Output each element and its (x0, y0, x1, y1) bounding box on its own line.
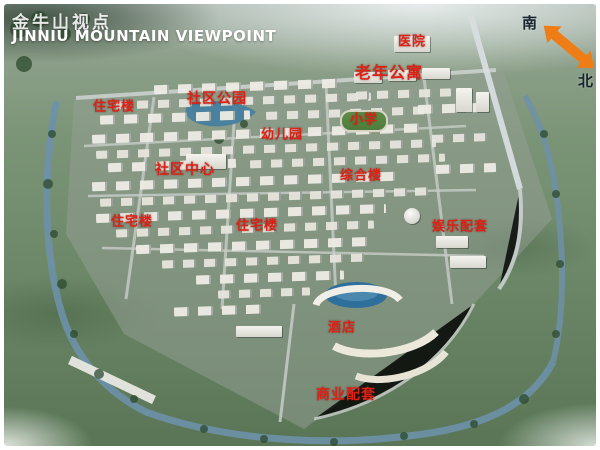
school-sports-field (340, 110, 388, 132)
office-tower (456, 88, 472, 112)
entertainment-building (436, 236, 468, 248)
aerial-rendering: 医院老年公寓社区公园住宅楼小学幼儿园社区中心综合楼住宅楼住宅楼娱乐配套酒店商业配… (4, 4, 596, 446)
senior-apartment-building (354, 72, 382, 83)
photo-frame: 医院老年公寓社区公园住宅楼小学幼儿园社区中心综合楼住宅楼住宅楼娱乐配套酒店商业配… (0, 0, 600, 450)
senior-apartment-building (388, 70, 416, 81)
senior-apartment-building (422, 68, 450, 79)
dome-building (404, 208, 420, 224)
office-tower (476, 92, 489, 112)
hospital-building (394, 36, 430, 52)
viewpoint-title-en: JINNIU MOUNTAIN VIEWPOINT (12, 27, 276, 45)
community-center-building (186, 154, 226, 169)
lowrise-building (236, 326, 282, 337)
entertainment-building (450, 256, 486, 268)
